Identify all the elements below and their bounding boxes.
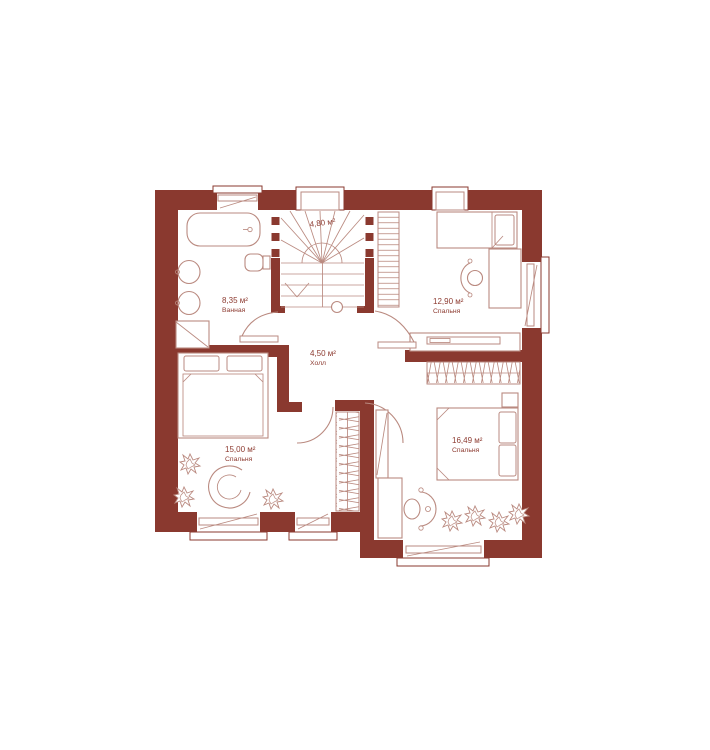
- desk: [489, 249, 521, 308]
- label-bathroom: 8,35 м² Ванная: [222, 296, 248, 314]
- bathroom-window: [213, 186, 262, 208]
- stairs-area-text: 4,80 м²: [309, 217, 336, 229]
- mirror: [376, 410, 388, 478]
- bedroom-br-name-text: Спальня: [452, 447, 480, 454]
- hall-west-wall: [277, 348, 302, 412]
- armchair: [209, 466, 250, 508]
- desk-chair: [461, 259, 483, 297]
- bedroom-bl-name-text: Спальня: [225, 456, 253, 463]
- room-bedroom-bottom-left: [174, 353, 283, 509]
- bedroom-top-right-door: [375, 311, 416, 348]
- bedroom-br-area-text: 16,49 м²: [452, 436, 483, 445]
- room-bedroom-top-right: [375, 212, 521, 351]
- bottomright-south-wall-2: [484, 540, 542, 558]
- toilet: [245, 254, 270, 271]
- bedroom-bottom-left-window-2: [289, 514, 337, 540]
- bathroom-name-text: Ванная: [222, 307, 246, 314]
- bedroom-bottom-left-window-1: [190, 514, 267, 540]
- bottomleft-south-wall-1: [155, 512, 197, 532]
- sink-1: [176, 261, 201, 284]
- top-wall-segment-2: [258, 190, 296, 210]
- hall-area-text: 4,50 м²: [310, 349, 336, 358]
- bathtub: [187, 213, 260, 246]
- stair-dormer: [296, 187, 344, 210]
- desk-chair: [404, 488, 436, 530]
- stair-right-flank-wall: [357, 258, 374, 313]
- bathroom-door: [240, 312, 278, 342]
- floor-plan-canvas: 8,35 м² Ванная 4,80 м² 12,90 м² Спальня …: [0, 0, 710, 750]
- plant-icon: [263, 489, 283, 509]
- bedroom-tr-area-text: 12,90 м²: [433, 297, 464, 306]
- stair-newel-post: [332, 302, 343, 313]
- bedroom-bottom-right-window: [397, 542, 489, 566]
- single-bed: [437, 212, 517, 248]
- bottomleft-south-wall-2: [260, 512, 295, 532]
- plant-icon: [489, 512, 509, 532]
- label-bedroom-top-right: 12,90 м² Спальня: [433, 297, 464, 315]
- laundry-cabinet: [176, 321, 209, 348]
- top-wall-segment-3: [344, 190, 432, 210]
- hall-east-wall: [405, 350, 522, 362]
- label-stairs: 4,80 м²: [309, 217, 336, 229]
- plant-icon: [465, 506, 485, 526]
- nightstand: [502, 393, 518, 407]
- dresser: [410, 333, 520, 351]
- bottomright-south-wall-1: [360, 540, 403, 558]
- bathroom-area-text: 8,35 м²: [222, 296, 248, 305]
- plant-icon: [442, 511, 462, 531]
- stair-straight-treads: [281, 263, 364, 307]
- shelf-wardrobe: [378, 212, 399, 307]
- left-wall: [155, 190, 178, 532]
- bottomleft-south-wall-3: [331, 512, 374, 532]
- floor-plan-drawing: 8,35 м² Ванная 4,80 м² 12,90 м² Спальня …: [0, 0, 710, 750]
- bedroom-tr-name-text: Спальня: [433, 308, 461, 315]
- hall-closet: [336, 412, 359, 511]
- bedroom-top-right-window: [525, 257, 549, 333]
- label-hall: 4,50 м² Холл: [310, 349, 336, 367]
- top-wall-segment-4: [468, 190, 522, 210]
- hall-name-text: Холл: [310, 360, 326, 367]
- bedroom-bl-area-text: 15,00 м²: [225, 445, 256, 454]
- bedroom-dormer: [432, 187, 468, 210]
- plant-icon: [180, 454, 200, 474]
- label-bedroom-bottom-left: 15,00 м² Спальня: [225, 445, 256, 463]
- sink-2: [176, 292, 201, 315]
- double-bed: [178, 353, 268, 438]
- desk: [378, 478, 402, 538]
- door-arc-bottom-left: [297, 407, 333, 443]
- right-wall-upper: [522, 190, 542, 262]
- stair-left-flank-wall: [271, 258, 285, 313]
- hanging-wardrobe: [427, 362, 520, 384]
- room-bathroom: [176, 213, 279, 348]
